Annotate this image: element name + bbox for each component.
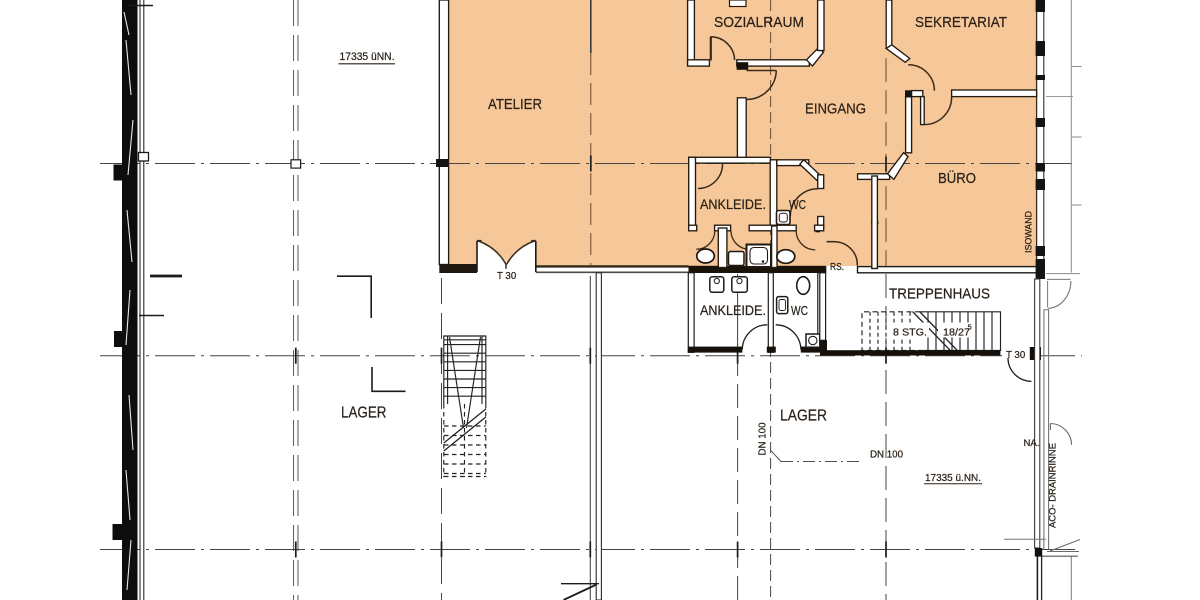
svg-text:5: 5 <box>968 323 972 332</box>
svg-text:SOZIALRAUM: SOZIALRAUM <box>714 14 804 31</box>
svg-text:DN 100: DN 100 <box>870 450 903 461</box>
svg-text:LAGER: LAGER <box>341 405 387 422</box>
svg-text:WC: WC <box>789 197 806 212</box>
svg-text:ACO- DRAINRINNE: ACO- DRAINRINNE <box>1048 443 1058 528</box>
svg-text:WC: WC <box>791 303 808 318</box>
svg-text:ISOWAND: ISOWAND <box>1024 211 1034 253</box>
svg-text:8 STG.: 8 STG. <box>893 328 927 339</box>
svg-text:ANKLEIDE.: ANKLEIDE. <box>700 303 766 318</box>
svg-text:EINGANG: EINGANG <box>805 101 866 118</box>
svg-text:RS.: RS. <box>830 262 844 273</box>
svg-text:17335 üNN.: 17335 üNN. <box>340 51 395 63</box>
svg-text:TREPPENHAUS: TREPPENHAUS <box>889 286 990 303</box>
svg-text:SEKRETARIAT: SEKRETARIAT <box>915 14 1007 31</box>
svg-text:LAGER: LAGER <box>780 408 827 425</box>
svg-text:T 30: T 30 <box>1006 350 1026 361</box>
svg-text:NA.: NA. <box>1024 438 1040 449</box>
svg-text:17335 ü.NN.: 17335 ü.NN. <box>925 472 981 484</box>
svg-text:T 30: T 30 <box>497 271 517 282</box>
svg-text:BÜRO: BÜRO <box>938 169 976 187</box>
svg-text:ANKLEIDE.: ANKLEIDE. <box>700 197 766 212</box>
svg-text:ATELIER: ATELIER <box>488 97 542 113</box>
svg-text:DN 100: DN 100 <box>758 422 769 455</box>
svg-text:18/27: 18/27 <box>943 328 970 339</box>
